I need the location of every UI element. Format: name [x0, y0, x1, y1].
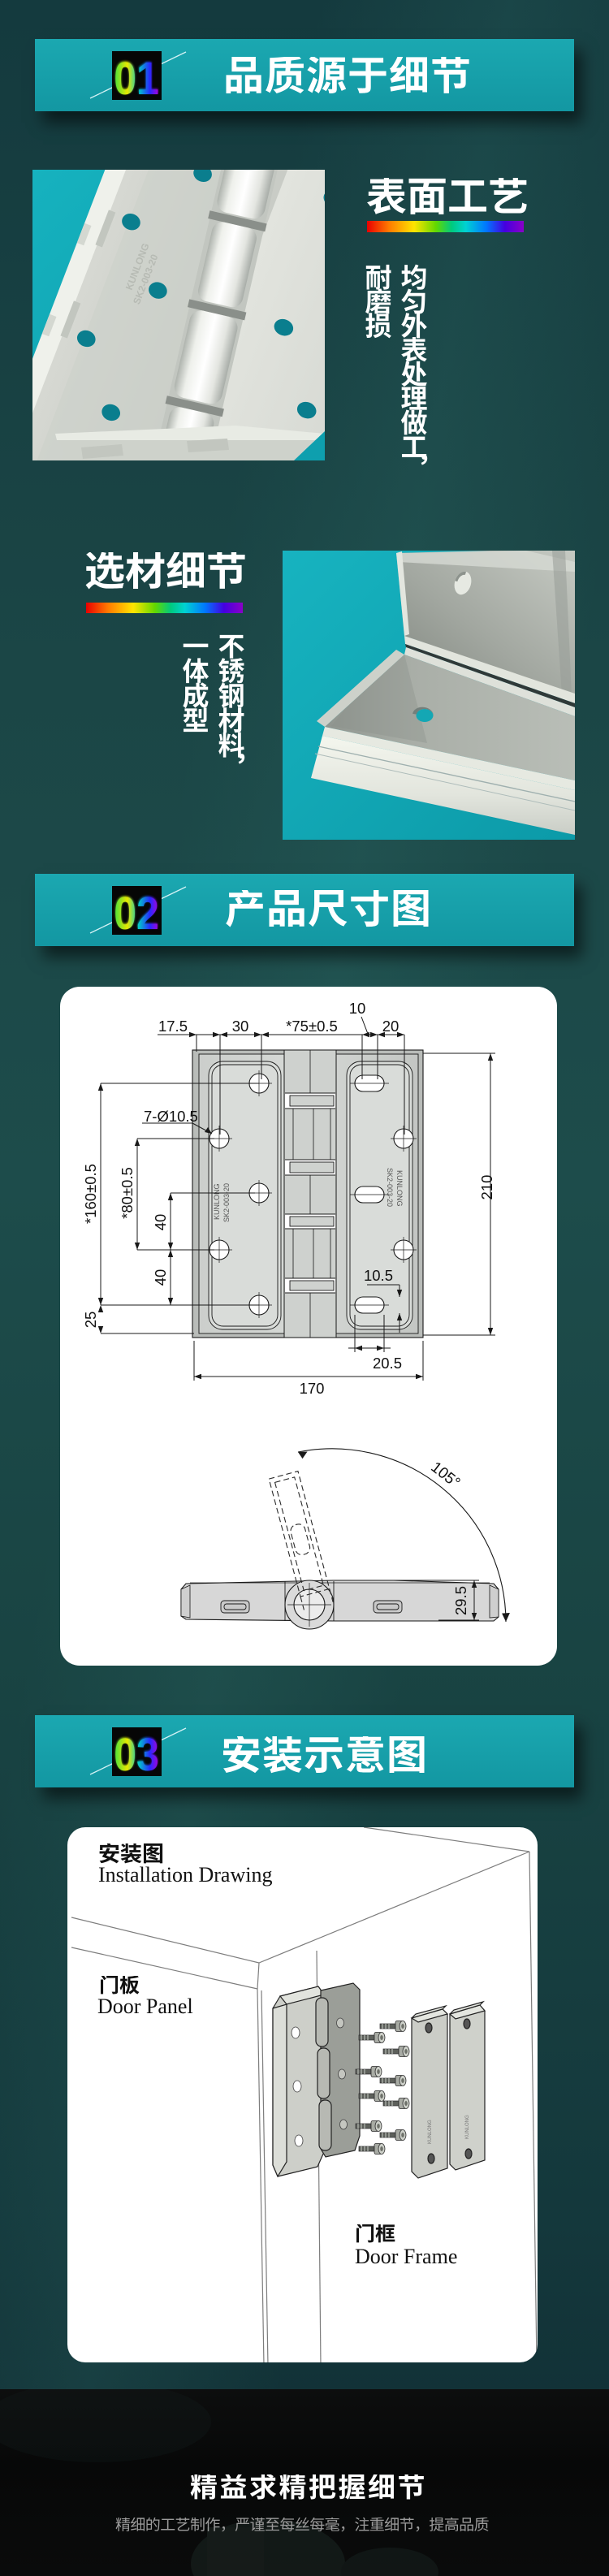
svg-text:40: 40 — [152, 1269, 169, 1286]
svg-text:7-Ø10.5: 7-Ø10.5 — [144, 1108, 198, 1125]
svg-text:170: 170 — [300, 1380, 325, 1397]
svg-text:KUNLONG: KUNLONG — [465, 2115, 470, 2139]
svg-text:*75±0.5: *75±0.5 — [286, 1018, 338, 1035]
svg-text:40: 40 — [152, 1214, 169, 1231]
svg-text:*80±0.5: *80±0.5 — [119, 1167, 136, 1219]
svg-text:01: 01 — [114, 54, 159, 100]
svg-text:SK2-003-20: SK2-003-20 — [222, 1183, 231, 1222]
svg-text:10: 10 — [349, 1000, 366, 1017]
svg-text:105°: 105° — [427, 1459, 463, 1492]
svg-text:25: 25 — [82, 1312, 99, 1329]
svg-text:03: 03 — [114, 1730, 159, 1776]
svg-text:29.5: 29.5 — [452, 1586, 469, 1615]
svg-text:*160±0.5: *160±0.5 — [82, 1164, 99, 1224]
svg-text:10.5: 10.5 — [364, 1267, 393, 1284]
svg-text:20.5: 20.5 — [373, 1355, 402, 1372]
svg-text:KUNLONG: KUNLONG — [213, 1183, 221, 1220]
svg-text:30: 30 — [232, 1018, 249, 1035]
svg-text:KUNLONG: KUNLONG — [395, 1170, 404, 1207]
svg-text:210: 210 — [478, 1175, 495, 1200]
svg-text:SK2-003-20: SK2-003-20 — [386, 1168, 394, 1207]
svg-text:17.5: 17.5 — [158, 1018, 188, 1035]
svg-text:02: 02 — [114, 888, 159, 935]
svg-text:20: 20 — [382, 1018, 400, 1035]
svg-text:KUNLONG: KUNLONG — [428, 2120, 433, 2144]
